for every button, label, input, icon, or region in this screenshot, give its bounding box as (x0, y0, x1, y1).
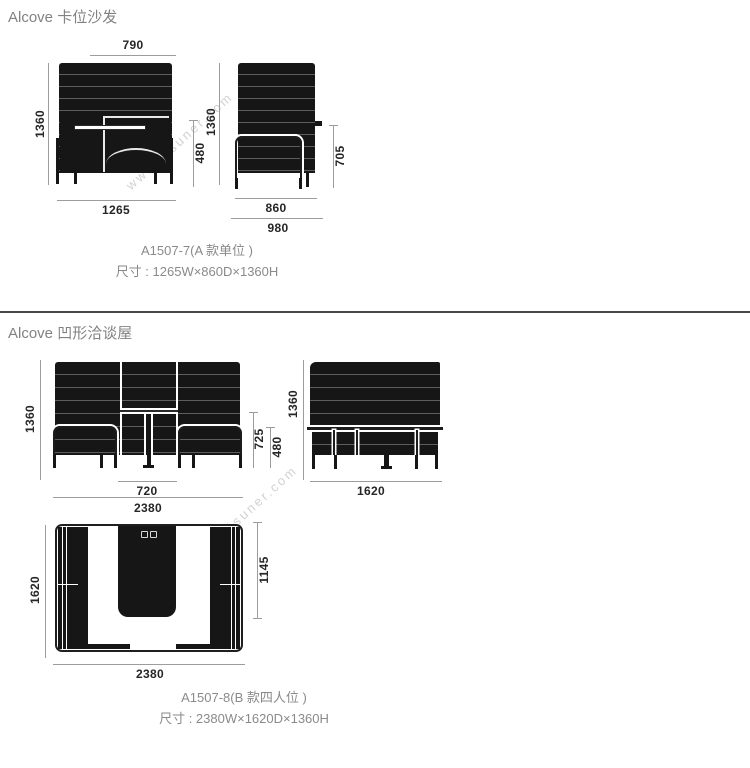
booth-leg (334, 455, 337, 469)
dim-side-arm-height: 705 (333, 134, 347, 178)
dim-line (303, 360, 304, 480)
section2-heading: Alcove 凹形洽谈屋 (8, 322, 132, 343)
dim-plan-width: 2380 (125, 667, 175, 681)
dim-booth-arm-height: 725 (252, 417, 266, 461)
size-caption-2: 尺寸 : 2380W×1620D×1360H (134, 708, 354, 727)
dim-tick (253, 618, 262, 619)
plan-seam (235, 527, 236, 649)
loop-leg (235, 178, 238, 189)
dim-line (310, 481, 442, 482)
dim-booth-seat-height: 480 (270, 425, 284, 469)
booth-leg (239, 455, 242, 468)
side-tab (315, 121, 322, 126)
frame-post-left (56, 138, 59, 184)
power-socket-icon (141, 531, 148, 538)
dim-line (48, 63, 49, 185)
dim-front-bottom-width: 1265 (91, 203, 141, 217)
booth-leg (435, 455, 438, 469)
seat-outline-top (103, 116, 169, 118)
dim-front-top-width: 790 (108, 38, 158, 52)
table-leg (144, 414, 153, 455)
booth-leg (114, 455, 117, 468)
product-spec-page: Alcove 卡位沙发 www.insuner.com 790 1360 480… (0, 0, 750, 768)
booth-leg (312, 455, 315, 469)
dim-front-height: 1360 (33, 102, 47, 146)
dim-plan-table-depth: 1145 (257, 548, 271, 592)
plan-seam (58, 584, 78, 585)
booth-leg (53, 455, 56, 468)
dim-side-depth-inner: 860 (251, 201, 301, 215)
plan-seat-bar (176, 644, 218, 649)
sofa-leg (306, 173, 309, 187)
dim-line (235, 198, 317, 199)
plan-seam (231, 527, 232, 649)
section1-heading: Alcove 卡位沙发 (8, 6, 117, 27)
rail-post (333, 430, 335, 455)
armrest-rail (307, 427, 443, 430)
dim-booth-depth: 1620 (346, 484, 396, 498)
sofa-leg (74, 172, 77, 184)
seat-cushion-curve (106, 148, 166, 172)
dim-line (219, 63, 220, 185)
loop-leg (299, 178, 302, 189)
dim-booth-height: 1360 (23, 397, 37, 441)
sofa-leg (154, 172, 157, 184)
table-foot (143, 465, 154, 468)
plan-seat-bar (88, 644, 130, 649)
plan-seam (62, 527, 63, 649)
dim-line (57, 200, 176, 201)
table-foot (381, 466, 392, 469)
booth-side-back (310, 362, 440, 426)
model-caption-2: A1507-8(B 款四人位 ) (134, 687, 354, 706)
plan-table (118, 526, 176, 617)
dim-side-height: 1360 (204, 100, 218, 144)
booth-leg (100, 455, 103, 468)
power-socket-icon (150, 531, 157, 538)
armrest-loop (235, 136, 302, 178)
dim-line (231, 218, 323, 219)
plan-seam (220, 584, 240, 585)
dim-line (53, 497, 243, 498)
rail-post (356, 430, 358, 455)
dim-plan-depth: 1620 (28, 568, 42, 612)
dim-table-width: 720 (122, 484, 172, 498)
dim-booth-side-height: 1360 (286, 382, 300, 426)
side-table-bar (74, 125, 146, 130)
dim-line (45, 525, 46, 658)
rail-post (416, 430, 418, 455)
booth-leg (178, 455, 181, 468)
armrest-loop (53, 426, 117, 455)
dim-booth-width: 2380 (123, 501, 173, 515)
dim-line (118, 481, 177, 482)
dim-line (90, 55, 176, 56)
dim-side-depth-outer: 980 (253, 221, 303, 235)
dim-line (53, 664, 245, 665)
dim-line (40, 360, 41, 480)
booth-leg (415, 455, 418, 469)
model-caption-1: A1507-7(A 款单位 ) (87, 240, 307, 259)
armrest-loop (178, 426, 242, 455)
booth-side-seat (312, 432, 438, 455)
section-divider (0, 311, 750, 313)
plan-seam (66, 527, 67, 649)
frame-post-right (170, 138, 173, 184)
booth-leg (192, 455, 195, 468)
size-caption-1: 尺寸 : 1265W×860D×1360H (87, 261, 307, 280)
